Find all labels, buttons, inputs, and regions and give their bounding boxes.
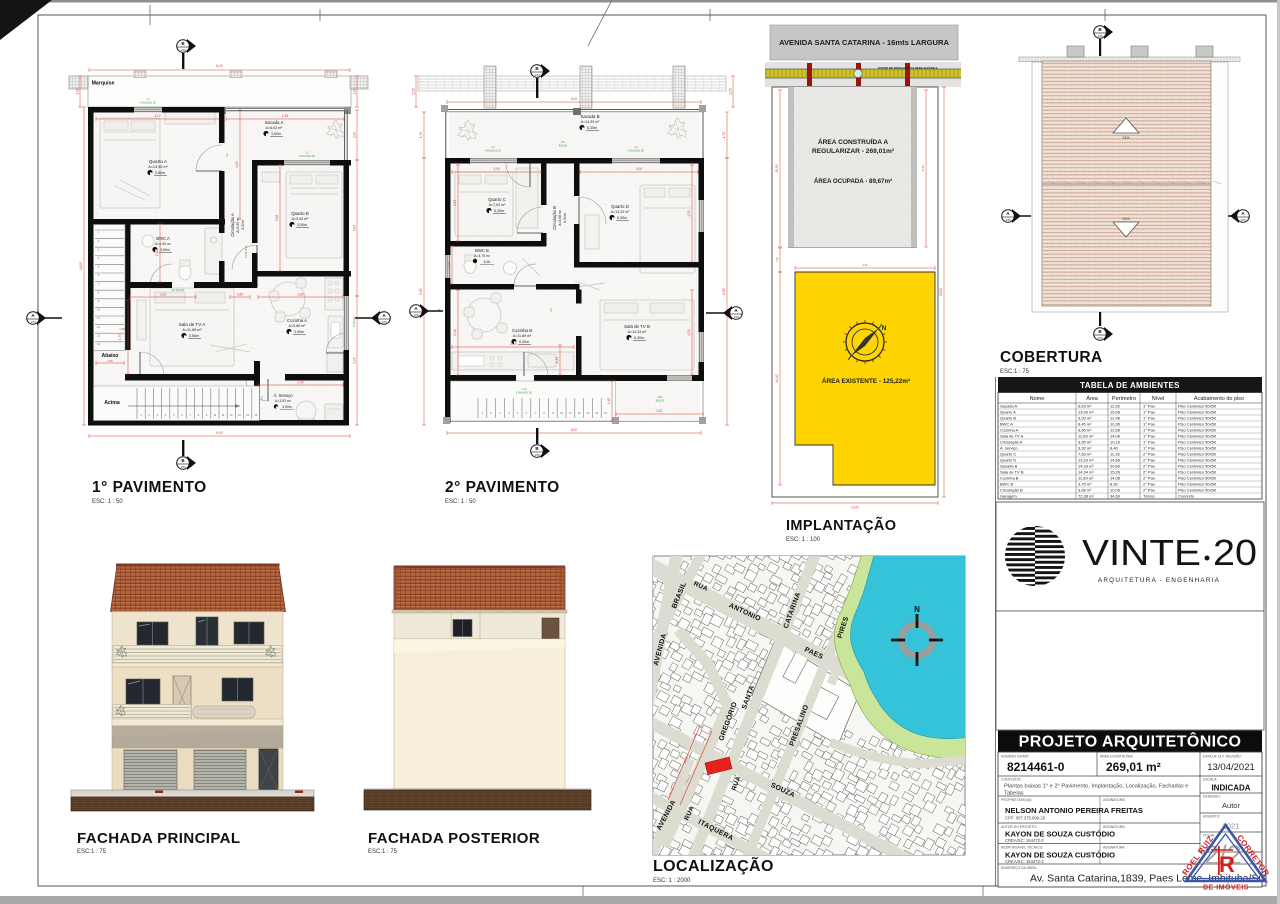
svg-text:ASSINATURA:: ASSINATURA: <box>1103 798 1125 802</box>
svg-text:4,50: 4,50 <box>687 329 691 335</box>
svg-text:Piso Cerâmico 50x50: Piso Cerâmico 50x50 <box>1178 422 1217 427</box>
svg-text:72,38 m²: 72,38 m² <box>1078 494 1094 499</box>
svg-text:Sacada A: Sacada A <box>1000 404 1017 409</box>
svg-text:ÁREA EXISTENTE - 125,22m²: ÁREA EXISTENTE - 125,22m² <box>822 376 910 385</box>
svg-text:9,53 m²: 9,53 m² <box>1078 416 1092 421</box>
svg-text:1° Pav.: 1° Pav. <box>1143 434 1156 439</box>
svg-text:1,70: 1,70 <box>722 132 726 138</box>
svg-text:14,06: 14,06 <box>1110 434 1121 439</box>
svg-text:24%: 24% <box>1122 136 1130 140</box>
svg-text:1/70: 1/70 <box>1240 218 1246 222</box>
svg-text:FACHADA POSTERIOR: FACHADA POSTERIOR <box>368 830 540 847</box>
svg-text:FACHADA PRINCIPAL: FACHADA PRINCIPAL <box>77 830 240 847</box>
svg-text:Quarto A: Quarto A <box>149 159 168 164</box>
svg-text:Cozinha A: Cozinha A <box>287 318 307 323</box>
svg-text:ESC: 1 : 2000: ESC: 1 : 2000 <box>653 878 691 884</box>
svg-text:140x120/1,00: 140x120/1,00 <box>628 149 644 153</box>
svg-text:6,30m: 6,30m <box>563 213 567 223</box>
svg-text:Piso Cerâmico 50x50: Piso Cerâmico 50x50 <box>1178 482 1217 487</box>
svg-text:140x160/1,00: 140x160/1,00 <box>516 391 532 395</box>
svg-text:Piso Cerâmico 50x50: Piso Cerâmico 50x50 <box>1178 428 1217 433</box>
svg-text:A=9,66 m²: A=9,66 m² <box>289 324 306 328</box>
svg-text:14,33 m²: 14,33 m² <box>1078 464 1094 469</box>
svg-text:Quarto D: Quarto D <box>611 204 629 209</box>
svg-text:Área: Área <box>1086 395 1099 402</box>
svg-text:Circulação B: Circulação B <box>1000 488 1023 493</box>
svg-text:Quarto C: Quarto C <box>488 197 506 202</box>
svg-text:4,40: 4,40 <box>862 263 868 267</box>
svg-text:1,00: 1,00 <box>76 88 80 94</box>
svg-text:1/70: 1/70 <box>413 313 419 317</box>
svg-text:15,06: 15,06 <box>1110 410 1121 415</box>
svg-text:8,30: 8,30 <box>1110 482 1119 487</box>
svg-text:Cozinha A: Cozinha A <box>1000 428 1019 433</box>
svg-text:Piso Cerâmico 50x50: Piso Cerâmico 50x50 <box>1178 446 1217 451</box>
svg-text:P2: P2 <box>225 153 229 157</box>
svg-text:PROJETO ARQUITETÔNICO: PROJETO ARQUITETÔNICO <box>1019 732 1242 751</box>
svg-text:6,30m: 6,30m <box>494 209 504 213</box>
svg-text:Piso Cerâmico 50x50: Piso Cerâmico 50x50 <box>1178 434 1217 439</box>
svg-text:2,90: 2,90 <box>353 132 357 138</box>
svg-text:ESC: 1 : 50: ESC: 1 : 50 <box>445 499 476 505</box>
svg-text:3,95: 3,95 <box>353 357 357 363</box>
svg-text:1,30: 1,30 <box>555 357 559 363</box>
svg-text:2,53: 2,53 <box>453 200 457 206</box>
svg-text:A=3,68 m²: A=3,68 m² <box>558 209 562 226</box>
svg-text:4,95: 4,95 <box>235 161 239 167</box>
svg-text:N: N <box>882 326 886 332</box>
svg-text:15,00: 15,00 <box>921 165 925 172</box>
svg-text:P3 70x210: P3 70x210 <box>172 288 185 292</box>
svg-text:3,50m: 3,50m <box>297 223 307 227</box>
svg-text:Piso Cerâmico 50x50: Piso Cerâmico 50x50 <box>1178 470 1217 475</box>
svg-text:Quarto C: Quarto C <box>1000 452 1016 457</box>
svg-text:1° Pav.: 1° Pav. <box>1143 446 1156 451</box>
svg-text:1,75: 1,75 <box>118 334 122 340</box>
svg-text:Nível: Nível <box>1152 396 1165 402</box>
svg-text:11,89 m²: 11,89 m² <box>1078 434 1094 439</box>
svg-text:P4: P4 <box>561 140 565 144</box>
svg-text:LOCALIZAÇÃO: LOCALIZAÇÃO <box>653 855 774 875</box>
svg-text:Á. serviço: Á. serviço <box>1000 446 1018 451</box>
svg-text:1/70: 1/70 <box>1097 336 1103 340</box>
svg-text:12,46: 12,46 <box>1110 416 1121 421</box>
svg-text:ÁREA OCUPADA - 89,67m²: ÁREA OCUPADA - 89,67m² <box>814 178 892 185</box>
svg-text:9,63: 9,63 <box>353 225 357 231</box>
svg-text:2° Pav.: 2° Pav. <box>1143 470 1156 475</box>
svg-text:15,26: 15,26 <box>1110 470 1121 475</box>
svg-text:2,10: 2,10 <box>155 250 159 256</box>
svg-text:Perímetro: Perímetro <box>1112 396 1136 402</box>
svg-text:Térreo: Térreo <box>1143 494 1156 499</box>
svg-text:ASSINATURA:: ASSINATURA: <box>1103 846 1125 850</box>
svg-text:1° Pav.: 1° Pav. <box>1143 428 1156 433</box>
svg-text:ESC:1 : 75: ESC:1 : 75 <box>77 849 107 855</box>
svg-text:J 1: J 1 <box>491 145 495 149</box>
svg-text:3,75 m²: 3,75 m² <box>1078 482 1092 487</box>
svg-text:ÁREA CONSTRUÍDA A: ÁREA CONSTRUÍDA A <box>818 137 889 146</box>
svg-text:Piso Cerâmico 50x50: Piso Cerâmico 50x50 <box>1178 404 1217 409</box>
svg-text:6,30m: 6,30m <box>617 216 627 220</box>
svg-text:Quarto B: Quarto B <box>1000 416 1016 421</box>
svg-text:CONTEÚDO:: CONTEÚDO: <box>1001 777 1021 782</box>
svg-text:2° Pav.: 2° Pav. <box>1143 458 1156 463</box>
svg-text:3,50m: 3,50m <box>282 405 292 409</box>
svg-text:34,60: 34,60 <box>1110 494 1121 499</box>
svg-text:A=6,63 m²: A=6,63 m² <box>266 126 283 130</box>
svg-text:Nome: Nome <box>1030 396 1045 402</box>
svg-text:A=11,89 m²: A=11,89 m² <box>182 328 202 332</box>
svg-text:1/70: 1/70 <box>180 48 186 52</box>
svg-text:Piso Cerâmico 50x50: Piso Cerâmico 50x50 <box>1178 416 1217 421</box>
svg-text:6,85: 6,85 <box>419 288 423 294</box>
svg-text:TABELA DE AMBIENTES: TABELA DE AMBIENTES <box>1080 381 1180 390</box>
svg-text:ÁREA CONSTRUÍDA:: ÁREA CONSTRUÍDA: <box>1100 755 1133 759</box>
svg-text:2,87: 2,87 <box>656 409 662 413</box>
svg-text:Sacada B: Sacada B <box>1000 464 1018 469</box>
svg-text:J 1A: J 1A <box>521 387 526 391</box>
svg-text:Quarto D: Quarto D <box>1000 458 1016 463</box>
svg-text:8,40: 8,40 <box>1110 446 1119 451</box>
svg-text:ESC:1 : 75: ESC:1 : 75 <box>368 849 398 855</box>
svg-text:6,30m: 6,30m <box>519 340 529 344</box>
svg-text:INDICADA: INDICADA <box>1211 784 1250 793</box>
svg-text:ASSUNTO:: ASSUNTO: <box>1203 815 1220 819</box>
svg-text:CREA/SC: 154472-3: CREA/SC: 154472-3 <box>1005 859 1044 864</box>
svg-text:BWC A: BWC A <box>156 236 170 241</box>
svg-text:1,95: 1,95 <box>282 114 288 118</box>
svg-text:IMPLANTAÇÃO: IMPLANTAÇÃO <box>786 516 896 534</box>
svg-text:4,55: 4,55 <box>687 210 691 216</box>
svg-text:269,01 m²: 269,01 m² <box>1106 760 1161 774</box>
svg-text:2,80: 2,80 <box>297 293 303 297</box>
svg-text:1,15: 1,15 <box>775 257 779 263</box>
svg-text:Piso Cerâmico 50x50: Piso Cerâmico 50x50 <box>1178 488 1217 493</box>
svg-text:20,60: 20,60 <box>1110 464 1121 469</box>
svg-text:1,00: 1,00 <box>447 262 451 268</box>
svg-text:Sala de TV A: Sala de TV A <box>179 322 207 327</box>
svg-text:R: R <box>1219 852 1235 877</box>
svg-text:A=13,20 m²: A=13,20 m² <box>611 210 630 214</box>
svg-text:10,16: 10,16 <box>1110 440 1121 445</box>
svg-text:Quarto B: Quarto B <box>291 211 309 216</box>
svg-text:140x120/1,00: 140x120/1,00 <box>485 149 501 153</box>
svg-text:2° Pav.: 2° Pav. <box>1143 482 1156 487</box>
svg-text:2° Pav.: 2° Pav. <box>1143 464 1156 469</box>
svg-text:P2: P2 <box>549 308 553 312</box>
svg-text:DESENHO:: DESENHO: <box>1203 795 1221 799</box>
svg-text:Sala de TV A: Sala de TV A <box>1000 434 1024 439</box>
svg-text:2,90: 2,90 <box>453 329 457 335</box>
svg-text:9,66 m²: 9,66 m² <box>1078 428 1092 433</box>
svg-text:J 1: J 1 <box>305 151 309 155</box>
svg-text:Circulação A: Circulação A <box>230 213 235 237</box>
svg-text:3,50m: 3,50m <box>241 220 245 230</box>
svg-text:A=14,33 m²: A=14,33 m² <box>581 120 600 124</box>
svg-text:2,40: 2,40 <box>297 381 303 385</box>
svg-text:1° Pav.: 1° Pav. <box>1143 422 1156 427</box>
svg-text:11,16: 11,16 <box>1110 452 1120 457</box>
svg-text:Cozinha B: Cozinha B <box>512 328 532 333</box>
svg-text:14,34 m²: 14,34 m² <box>1078 470 1094 475</box>
svg-text:1/70: 1/70 <box>180 465 186 469</box>
svg-text:A=13,90 m²: A=13,90 m² <box>148 165 168 169</box>
svg-text:1° Pav.: 1° Pav. <box>1143 404 1156 409</box>
svg-text:3,50m: 3,50m <box>294 330 304 334</box>
svg-text:REGULARIZAR - 269,01m²: REGULARIZAR - 269,01m² <box>812 148 895 155</box>
svg-text:3,10: 3,10 <box>160 293 166 297</box>
svg-text:Quarto A: Quarto A <box>1000 410 1016 415</box>
svg-text:80x210: 80x210 <box>559 144 568 148</box>
svg-text:10,00: 10,00 <box>851 506 859 510</box>
svg-text:11,89 m²: 11,89 m² <box>1078 476 1094 481</box>
svg-text:4,04: 4,04 <box>510 342 516 346</box>
svg-text:10,36: 10,36 <box>1110 422 1121 427</box>
svg-text:ARQUITETURA - ENGENHARIA: ARQUITETURA - ENGENHARIA <box>1098 577 1220 584</box>
svg-text:6,63 m²: 6,63 m² <box>1078 404 1092 409</box>
svg-text:1,40: 1,40 <box>607 398 611 404</box>
svg-text:Circulação B: Circulação B <box>552 206 557 230</box>
svg-text:8,00: 8,00 <box>216 431 222 435</box>
svg-text:6,30: 6,30 <box>484 260 491 264</box>
svg-text:4,12: 4,12 <box>154 114 160 118</box>
svg-text:BWC B: BWC B <box>475 248 489 253</box>
svg-text:1,50: 1,50 <box>729 88 733 94</box>
svg-text:CPF: 007.376.699-26: CPF: 007.376.699-26 <box>1005 816 1046 821</box>
svg-text:16,00: 16,00 <box>79 262 83 270</box>
svg-text:PONTO DE PASSAGEM DA REDE ELÉT: PONTO DE PASSAGEM DA REDE ELÉTRICA <box>878 65 937 70</box>
svg-text:Autor: Autor <box>1222 801 1240 810</box>
svg-text:Cozinha B: Cozinha B <box>1000 476 1019 481</box>
svg-text:13/04/2021: 13/04/2021 <box>1207 762 1255 773</box>
svg-text:Acima: Acima <box>104 400 120 406</box>
svg-text:Garagem: Garagem <box>1000 494 1017 499</box>
svg-text:1° Pav.: 1° Pav. <box>1143 440 1156 445</box>
svg-text:PROPRIETÁRIO(A):: PROPRIETÁRIO(A): <box>1001 798 1032 802</box>
svg-text:Sala de TV B: Sala de TV B <box>1000 470 1024 475</box>
svg-text:13,20 m²: 13,20 m² <box>1078 458 1094 463</box>
svg-text:3,50m: 3,50m <box>155 171 165 175</box>
svg-text:8,00: 8,00 <box>216 64 222 68</box>
svg-text:COBERTURA: COBERTURA <box>1000 349 1103 366</box>
svg-text:140x120/1,00: 140x120/1,00 <box>140 101 156 105</box>
svg-text:RESPONSÁVEL TÉCNICO:: RESPONSÁVEL TÉCNICO: <box>1001 845 1043 850</box>
svg-text:A=11,89 m²: A=11,89 m² <box>513 334 532 338</box>
svg-text:ESC: 1 : 50: ESC: 1 : 50 <box>92 499 123 505</box>
svg-text:14,06: 14,06 <box>1110 476 1121 481</box>
svg-text:NELSON ANTONIO PEREIRA FREITAS: NELSON ANTONIO PEREIRA FREITAS <box>1005 806 1143 815</box>
svg-text:3,92 m²: 3,92 m² <box>1078 446 1092 451</box>
svg-text:1/70: 1/70 <box>733 315 739 319</box>
svg-text:11,26: 11,26 <box>1110 404 1120 409</box>
svg-text:Tabelas: Tabelas <box>1004 791 1024 797</box>
svg-text:Sala de TV B: Sala de TV B <box>624 324 650 329</box>
svg-text:6,45 m²: 6,45 m² <box>1078 422 1092 427</box>
svg-text:2° Pav.: 2° Pav. <box>1143 452 1156 457</box>
svg-text:10,06: 10,06 <box>1110 488 1121 493</box>
svg-text:ASSINATURA:: ASSINATURA: <box>1103 825 1125 829</box>
svg-text:6,85: 6,85 <box>722 288 726 294</box>
svg-text:3,00: 3,00 <box>493 167 499 171</box>
svg-text:Circulação A: Circulação A <box>1000 440 1023 445</box>
svg-text:A=9,53 m²: A=9,53 m² <box>292 217 309 221</box>
svg-text:DE IMÓVEIS: DE IMÓVEIS <box>1203 883 1249 892</box>
svg-text:CREA/SC: 154472-3: CREA/SC: 154472-3 <box>1005 838 1044 843</box>
svg-text:1° Pav.: 1° Pav. <box>1143 410 1156 415</box>
svg-text:1,50: 1,50 <box>412 88 416 94</box>
svg-text:Sacada B: Sacada B <box>580 114 599 119</box>
svg-text:2° Pav.: 2° Pav. <box>1143 476 1156 481</box>
svg-text:AVENIDA SANTA CATARINA - 16m: AVENIDA SANTA CATARINA - 16mts LARGURA <box>779 38 949 47</box>
svg-text:J 1: J 1 <box>146 97 150 101</box>
svg-text:A=3,92 m²: A=3,92 m² <box>275 399 292 403</box>
svg-text:2° Pav.: 2° Pav. <box>1143 488 1156 493</box>
svg-text:1/70: 1/70 <box>534 73 540 77</box>
svg-text:1/70: 1/70 <box>534 453 540 457</box>
svg-text:P3: P3 <box>260 396 264 400</box>
svg-text:Piso Cerâmico 50x50: Piso Cerâmico 50x50 <box>1178 464 1217 469</box>
svg-text:13,90 m²: 13,90 m² <box>1078 410 1094 415</box>
svg-text:1/70: 1/70 <box>1005 218 1011 222</box>
svg-text:3,50m: 3,50m <box>189 334 199 338</box>
svg-text:Concreto: Concreto <box>1178 494 1195 499</box>
svg-text:14,00: 14,00 <box>775 374 779 382</box>
svg-text:VINTE: VINTE <box>1082 532 1201 573</box>
svg-text:8,00: 8,00 <box>571 428 577 432</box>
svg-text:3,48: 3,48 <box>275 215 279 221</box>
svg-text:P2 80x210: P2 80x210 <box>244 245 248 258</box>
svg-text:7,63 m²: 7,63 m² <box>1078 452 1092 457</box>
svg-text:Plantas baixas 1° e 2° Pavimen: Plantas baixas 1° e 2° Pavimento, Implan… <box>1004 784 1188 790</box>
svg-text:Marquise: Marquise <box>92 81 115 87</box>
svg-text:24%: 24% <box>1122 217 1130 221</box>
svg-text:20: 20 <box>1213 532 1257 573</box>
svg-text:8,00: 8,00 <box>571 97 577 101</box>
svg-text:Á. Serviço: Á. Serviço <box>273 393 293 398</box>
svg-text:3,50m: 3,50m <box>160 248 170 252</box>
svg-text:1,70: 1,70 <box>419 132 423 138</box>
svg-text:A=6,45 m²: A=6,45 m² <box>155 242 172 246</box>
svg-text:1° Pav.: 1° Pav. <box>1143 416 1156 421</box>
svg-text:Piso Cerâmico 50x50: Piso Cerâmico 50x50 <box>1178 440 1217 445</box>
svg-text:ESCALA:: ESCALA: <box>1203 778 1217 782</box>
svg-text:Piso Cerâmico 50x50: Piso Cerâmico 50x50 <box>1178 452 1217 457</box>
svg-text:A=14,34 m²: A=14,34 m² <box>628 330 647 334</box>
svg-text:3,50m: 3,50m <box>271 132 281 136</box>
svg-text:6,30m: 6,30m <box>587 126 597 130</box>
svg-text:8214461-0: 8214461-0 <box>1007 760 1065 774</box>
svg-text:J 1: J 1 <box>634 145 638 149</box>
svg-text:4,00: 4,00 <box>636 167 642 171</box>
svg-text:BWC B: BWC B <box>1000 482 1013 487</box>
svg-text:1,90: 1,90 <box>107 359 113 363</box>
svg-text:A=7,63 m²: A=7,63 m² <box>489 203 506 207</box>
svg-text:14,66: 14,66 <box>1110 458 1121 463</box>
svg-text:15,00: 15,00 <box>775 164 779 172</box>
svg-text:Piso Cerâmico 50x50: Piso Cerâmico 50x50 <box>1178 458 1217 463</box>
svg-text:140x120/1,00: 140x120/1,00 <box>299 154 315 158</box>
svg-text:1/70: 1/70 <box>30 320 36 324</box>
svg-text:P22: P22 <box>658 395 663 399</box>
svg-text:2° PAVIMENTO: 2° PAVIMENTO <box>445 479 560 496</box>
svg-text:N: N <box>914 605 920 614</box>
svg-text:DATA DE ÚLT. REVISÃO:: DATA DE ÚLT. REVISÃO: <box>1203 754 1242 759</box>
svg-text:AUTOR DO PROJETO:: AUTOR DO PROJETO: <box>1001 825 1037 829</box>
svg-text:1,90: 1,90 <box>119 327 125 331</box>
svg-text:1/70: 1/70 <box>1097 34 1103 38</box>
svg-text:3,68 m²: 3,68 m² <box>1078 488 1092 493</box>
svg-text:A=3,75 m²: A=3,75 m² <box>474 254 491 258</box>
svg-text:ENDEREÇO DA OBRA:: ENDEREÇO DA OBRA: <box>1001 866 1037 870</box>
svg-text:12,56: 12,56 <box>1110 428 1121 433</box>
svg-text:NÚMERO DA ART:: NÚMERO DA ART: <box>1001 754 1030 759</box>
svg-text:ESC: 1 : 100: ESC: 1 : 100 <box>786 537 821 543</box>
svg-text:1° PAVIMENTO: 1° PAVIMENTO <box>92 479 207 496</box>
svg-text:3,95 m²: 3,95 m² <box>1078 440 1092 445</box>
svg-text:6,30m: 6,30m <box>634 336 644 340</box>
svg-text:80x210: 80x210 <box>656 399 665 403</box>
svg-text:1,00: 1,00 <box>353 88 357 94</box>
svg-text:Piso Cerâmico 50x50: Piso Cerâmico 50x50 <box>1178 410 1217 415</box>
svg-text:Sacada A: Sacada A <box>265 120 284 125</box>
svg-text:ESC:1 : 75: ESC:1 : 75 <box>1000 369 1030 375</box>
svg-text:Acabamento do piso: Acabamento do piso <box>1194 396 1244 402</box>
svg-text:Piso Cerâmico 50x50: Piso Cerâmico 50x50 <box>1178 476 1217 481</box>
svg-text:0,55: 0,55 <box>237 293 243 297</box>
svg-text:1/70: 1/70 <box>381 320 387 324</box>
svg-text:BWC A: BWC A <box>1000 422 1013 427</box>
svg-text:25,00: 25,00 <box>939 288 943 296</box>
